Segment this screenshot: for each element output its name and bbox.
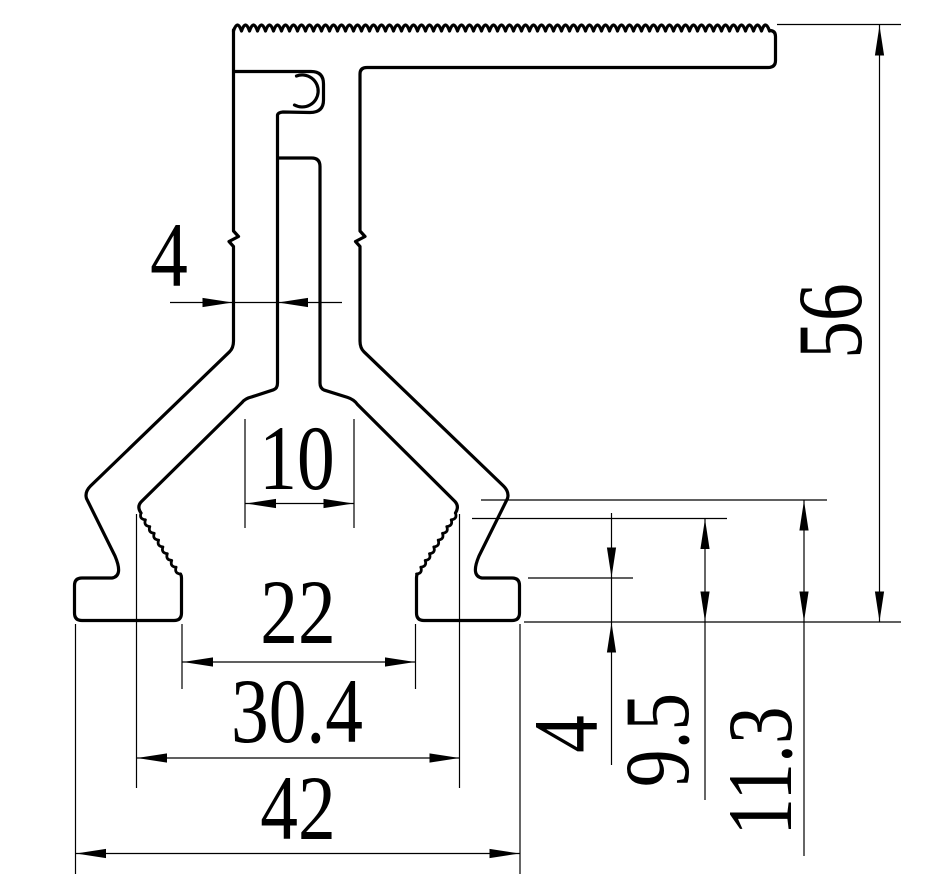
left-grip-teeth	[141, 513, 181, 574]
dim-label-ledge-height: 9.5	[607, 693, 709, 787]
arrowhead-icon	[875, 26, 884, 56]
arrowhead-icon	[278, 298, 308, 307]
arrowhead-icon	[607, 548, 616, 578]
arrowhead-icon	[430, 753, 460, 762]
arrowhead-icon	[700, 519, 709, 549]
arrowhead-icon	[76, 849, 106, 858]
dim-label-foot-height: 4	[516, 715, 618, 753]
arrowhead-icon	[799, 501, 808, 531]
profile-geometry	[75, 25, 776, 621]
right-grip-teeth	[417, 513, 456, 574]
arrowhead-icon	[700, 592, 709, 622]
technical-drawing: 4 10 22 30.4 42 56 4 9.5 11.3	[0, 0, 949, 892]
profile-right-outline	[356, 31, 776, 621]
profile-left-outline	[75, 30, 239, 621]
dim-label-mouth-width: 10	[259, 408, 334, 510]
arrowhead-icon	[385, 657, 415, 666]
arrowhead-icon	[137, 753, 167, 762]
screw-channel-arc	[295, 75, 319, 107]
dimension-annotations: 4 10 22 30.4 42 56 4 9.5 11.3	[76, 25, 902, 875]
arrowhead-icon	[203, 298, 233, 307]
arrowhead-icon	[875, 592, 884, 622]
dim-label-channel-max-width: 30.4	[231, 661, 363, 763]
arrowhead-icon	[183, 657, 213, 666]
dim-label-knee-height: 11.3	[710, 706, 812, 835]
drawing-canvas: 4 10 22 30.4 42 56 4 9.5 11.3	[0, 0, 949, 892]
top-knurling	[234, 25, 770, 31]
dim-label-base-width: 42	[260, 758, 335, 860]
arrowhead-icon	[490, 849, 520, 858]
dim-label-overall-height: 56	[780, 283, 882, 358]
arrowhead-icon	[607, 623, 616, 653]
dim-label-slot-width: 4	[150, 205, 188, 307]
arrowhead-icon	[799, 592, 808, 622]
dim-label-channel-opening: 22	[260, 562, 335, 664]
